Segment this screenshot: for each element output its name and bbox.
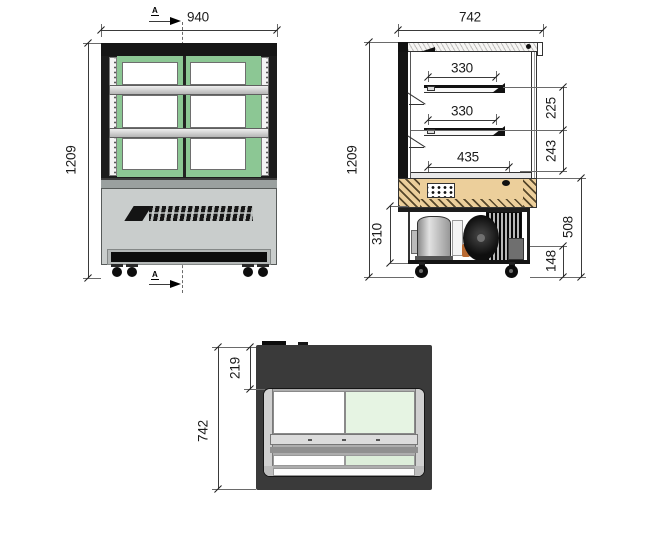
plan-side-column-left <box>264 389 273 476</box>
side-shelf-1-clip <box>427 86 435 91</box>
glass-pane <box>122 138 178 170</box>
machine-side-panel <box>508 238 524 260</box>
caster-wheel <box>258 267 268 277</box>
dim-line-742-side <box>398 30 543 31</box>
front-canopy <box>101 43 277 56</box>
dim-label-caster-height: 148 <box>544 250 559 272</box>
side-slab-tail <box>537 42 543 56</box>
dim-label-machine-bay: 310 <box>370 223 385 245</box>
plan-bottom-strip <box>273 468 415 476</box>
dim-line-940 <box>101 30 277 31</box>
side-back-liner <box>408 52 411 178</box>
plan-shelf-dot <box>308 439 312 441</box>
plan-bottom-block-left <box>264 466 273 476</box>
counter-vent-block <box>427 183 455 198</box>
dim-label-shelf-top: 330 <box>451 61 473 76</box>
dim-line-310 <box>390 206 391 263</box>
dim-line-148 <box>563 246 564 277</box>
compressor <box>417 216 451 258</box>
dim-line-742-plan <box>218 347 219 489</box>
shelf-track-left <box>109 57 117 176</box>
caster-wheel <box>127 267 137 277</box>
section-marker-a-top: A <box>151 7 159 16</box>
section-arrow-icon <box>170 280 181 288</box>
drawing-canvas: 940 A <box>0 0 669 544</box>
dim-line-435 <box>428 167 509 168</box>
plan-glass-right <box>345 391 415 434</box>
dim-line-330-upper <box>428 77 496 78</box>
glass-pane <box>190 62 246 85</box>
fan-hub <box>477 234 485 242</box>
dim-label-shelf-mid: 330 <box>451 104 473 119</box>
dim-label-base-deck: 435 <box>457 150 479 165</box>
vent-grille <box>111 252 267 262</box>
caster-wheel <box>415 265 428 278</box>
side-top-slab <box>398 42 543 52</box>
brand-logo-gap <box>149 212 253 214</box>
side-top-corner-block <box>398 42 408 52</box>
dim-label-gap-lower: 243 <box>544 140 559 162</box>
dim-line-1209-side <box>369 42 370 277</box>
section-marker-a-bottom: A <box>151 271 159 280</box>
glass-pane <box>122 62 178 85</box>
glass-pane <box>122 95 178 128</box>
front-shelf-1 <box>109 85 269 95</box>
dim-line-225 <box>563 87 564 130</box>
front-shelf-2 <box>109 128 269 138</box>
shelf-track-right <box>261 57 269 176</box>
dim-label-front-overhang: 219 <box>228 357 243 379</box>
plan-shelf-dot <box>342 439 346 441</box>
dim-line-243 <box>563 130 564 171</box>
section-arrow-line <box>149 21 171 22</box>
dim-label-overall-height-front: 1209 <box>64 145 79 174</box>
caster-wheel <box>243 267 253 277</box>
dim-line-330-lower <box>428 120 496 121</box>
dim-label-plan-depth: 742 <box>196 420 211 442</box>
counter-fitting <box>502 180 510 186</box>
shelf-bracket-foot <box>409 147 424 148</box>
dim-label-overall-height-side: 1209 <box>345 145 360 174</box>
shelf-bracket-foot <box>409 104 424 105</box>
dim-label-overall-depth: 742 <box>459 10 481 25</box>
screw-dot <box>526 44 531 49</box>
dim-line-1209-front <box>88 43 89 278</box>
plan-lower-right <box>345 455 415 466</box>
plan-bottom-block-right <box>415 466 424 476</box>
dim-label-base-section: 508 <box>561 216 576 238</box>
extension-line <box>364 277 414 278</box>
dim-line-508 <box>581 178 582 277</box>
extension-line <box>503 87 567 88</box>
side-shelf-1 <box>424 85 502 93</box>
side-front-glass-inner-line <box>534 52 535 178</box>
plan-dark-strip <box>270 447 418 453</box>
extension-line <box>390 263 408 264</box>
counter-hatch-bottom <box>420 199 523 207</box>
glass-pane <box>190 95 246 128</box>
counter-hatch-right <box>523 179 536 207</box>
plan-opening <box>263 388 425 477</box>
dim-line-219 <box>250 347 251 389</box>
caster-wheel <box>505 265 518 278</box>
front-separator-band <box>101 178 277 188</box>
counter-hatch-left <box>399 179 420 207</box>
section-arrow-line <box>149 284 171 285</box>
door-divider <box>183 56 186 177</box>
extension-line <box>212 489 256 490</box>
plan-lower-left <box>273 455 345 466</box>
plan-side-column-right <box>415 389 424 476</box>
plan-glass-left <box>273 391 345 434</box>
caster-wheel <box>112 267 122 277</box>
glass-pane <box>190 138 246 170</box>
section-arrow-icon <box>170 17 181 25</box>
extension-line <box>390 206 408 207</box>
dim-label-gap-upper: 225 <box>544 97 559 119</box>
dim-label-overall-width: 940 <box>187 10 209 25</box>
plan-shelf-dot <box>376 439 380 441</box>
extension-line <box>411 130 567 131</box>
